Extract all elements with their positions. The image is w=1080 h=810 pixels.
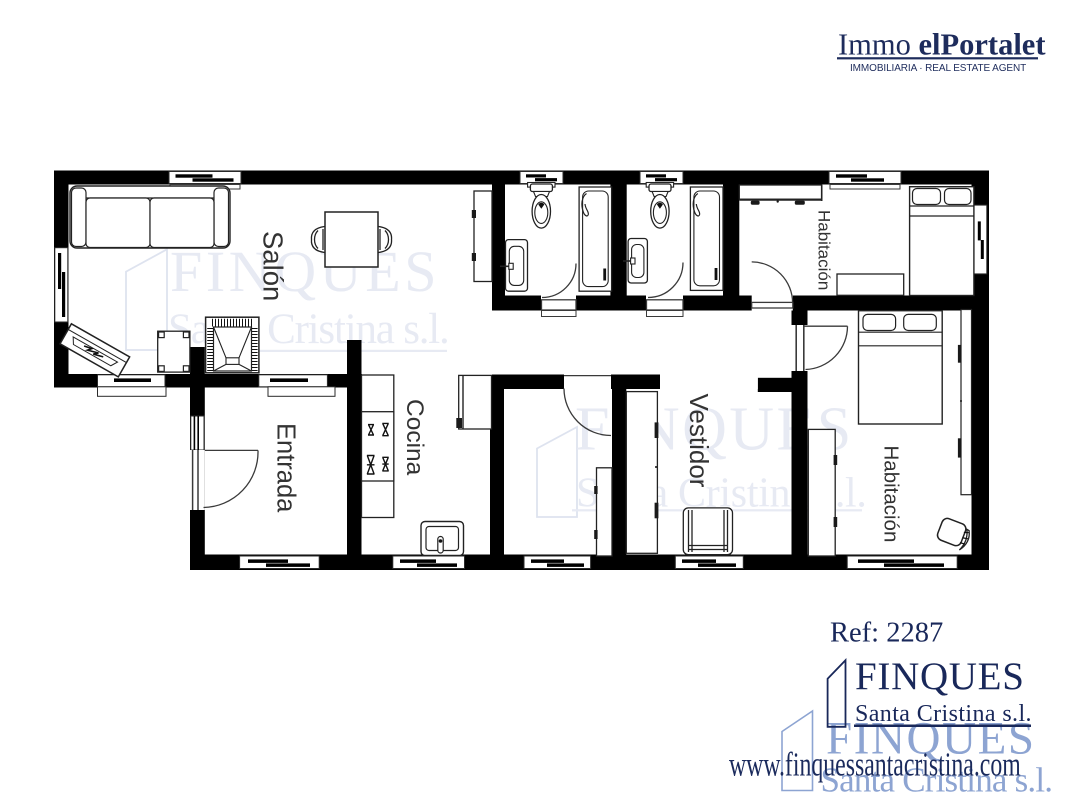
svg-text:Cocina: Cocina — [401, 399, 428, 476]
svg-text:FINQUES: FINQUES — [170, 239, 440, 304]
svg-text:Vestidor: Vestidor — [684, 394, 714, 488]
svg-text:Habitación: Habitación — [815, 210, 834, 290]
svg-text:Ref: 2287: Ref: 2287 — [830, 618, 943, 649]
svg-text:Santa Cristina s.l.: Santa Cristina s.l. — [855, 701, 1032, 727]
svg-text:Salón: Salón — [258, 231, 289, 301]
svg-text:Immo elPortalet: Immo elPortalet — [838, 28, 1046, 62]
svg-text:Entrada: Entrada — [272, 423, 300, 513]
svg-text:Habitación: Habitación — [880, 446, 903, 543]
svg-text:FINQUES: FINQUES — [855, 655, 1025, 698]
svg-text:IMMOBILIARIA · REAL ESTATE AGE: IMMOBILIARIA · REAL ESTATE AGENT — [850, 63, 1026, 74]
svg-text:www.finquessantacristina.com: www.finquessantacristina.com — [729, 747, 1021, 784]
